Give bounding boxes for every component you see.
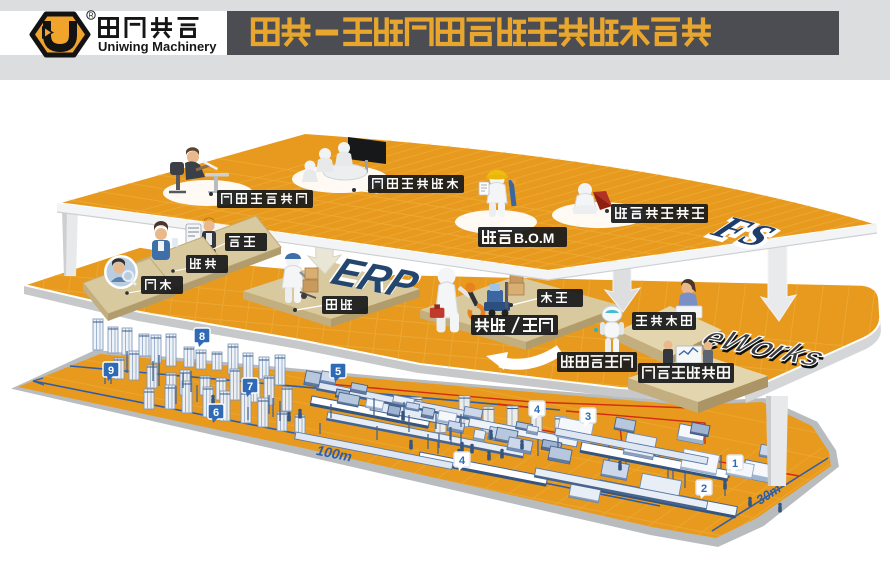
svg-text:9: 9 bbox=[108, 365, 114, 377]
svg-text:6: 6 bbox=[213, 407, 219, 419]
svg-text:B.O.M: B.O.M bbox=[514, 230, 554, 246]
svg-text:Uniwing Machinery: Uniwing Machinery bbox=[98, 39, 217, 54]
svg-text:4: 4 bbox=[459, 455, 466, 467]
svg-text:7: 7 bbox=[247, 381, 253, 393]
svg-text:8: 8 bbox=[199, 331, 205, 343]
svg-text:4: 4 bbox=[534, 404, 541, 416]
svg-text:1: 1 bbox=[732, 458, 738, 470]
svg-text:R: R bbox=[88, 13, 93, 20]
svg-text:5: 5 bbox=[335, 366, 341, 378]
svg-text:3: 3 bbox=[585, 411, 591, 423]
svg-text:2: 2 bbox=[701, 483, 707, 495]
